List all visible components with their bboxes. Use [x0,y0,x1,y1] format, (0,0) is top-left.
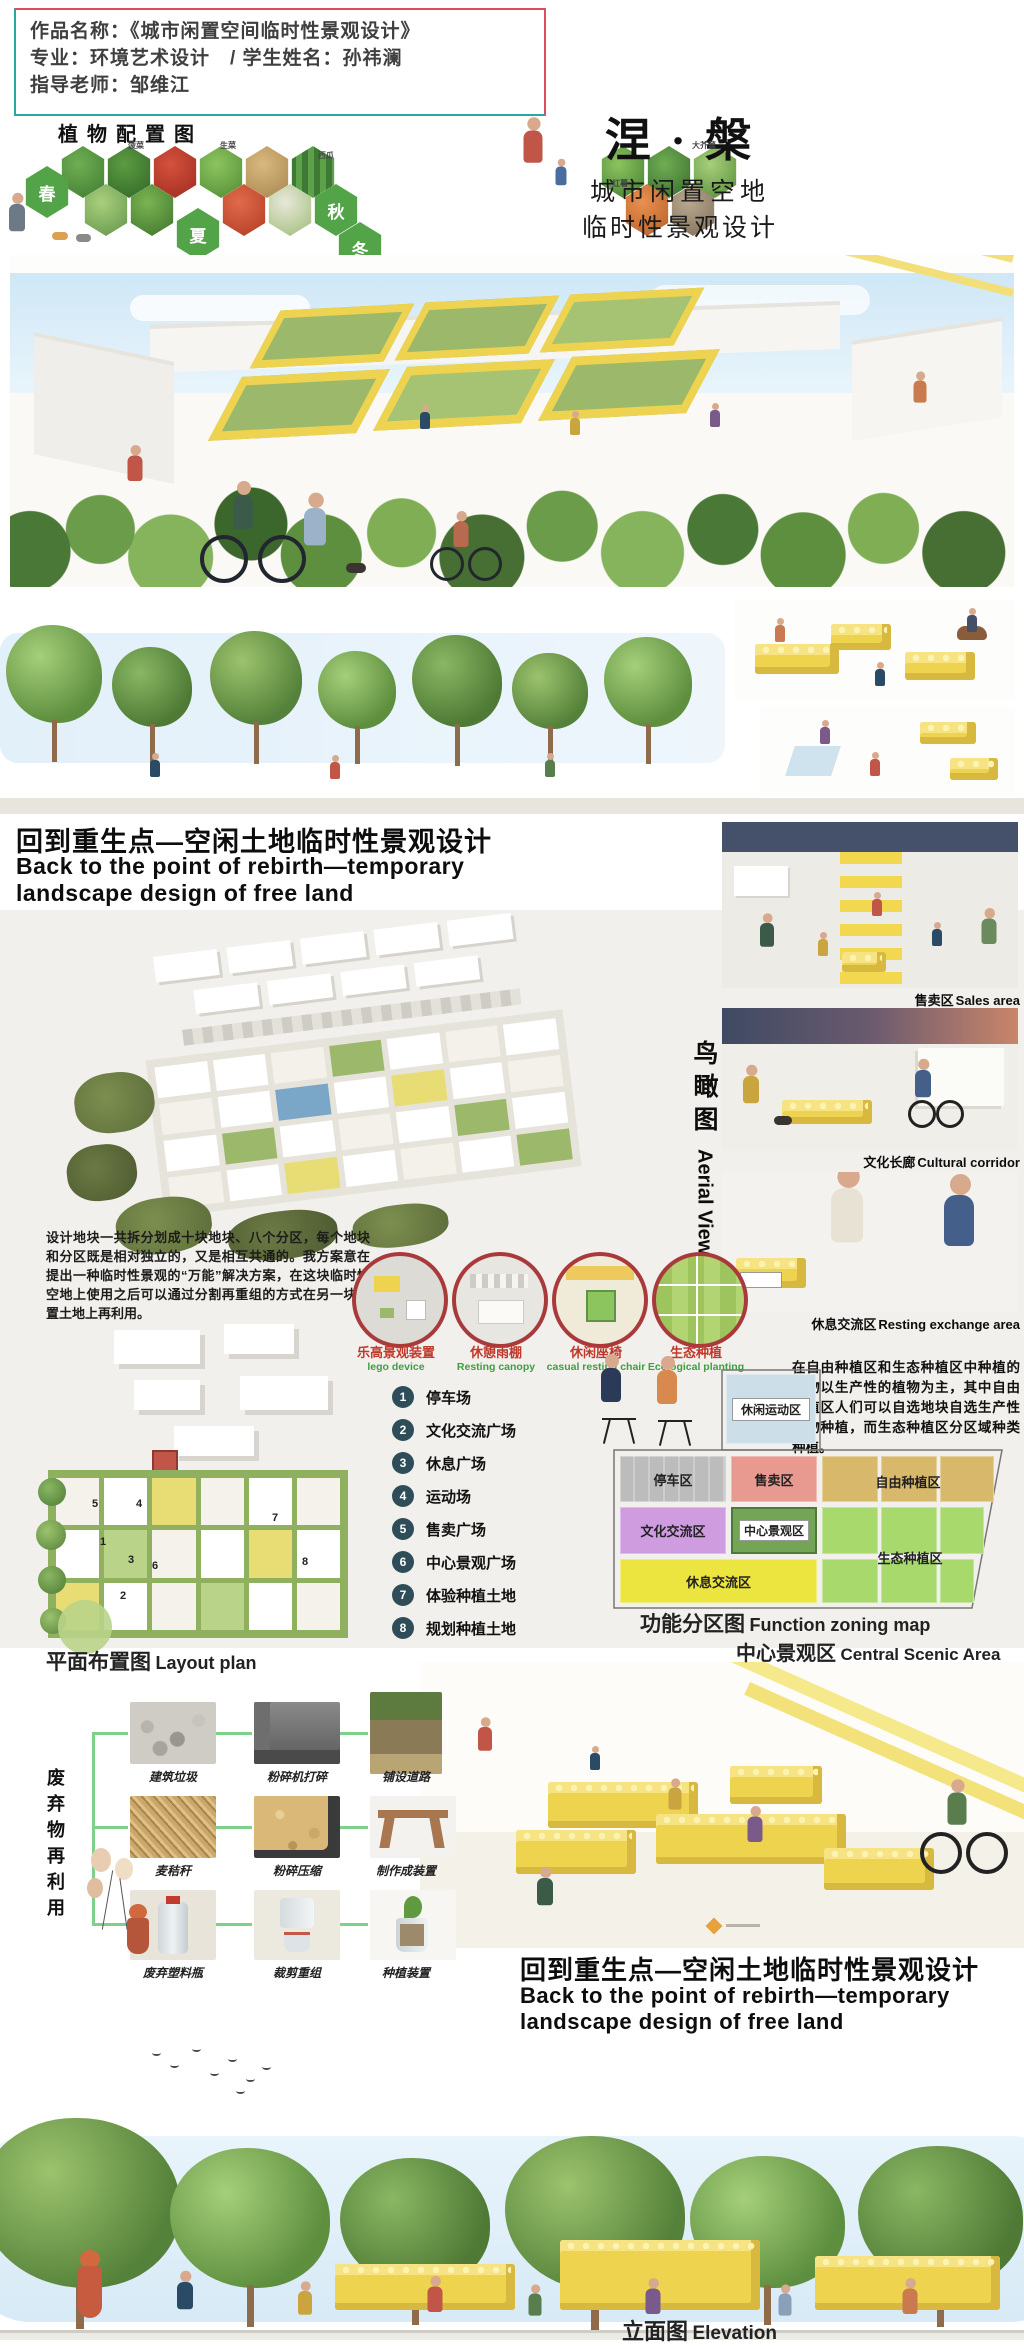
zone-free-label: 自由种植区 [822,1472,994,1491]
section-heading-en1: Back to the point of rebirth—temporary [16,853,464,880]
girl-dress [78,2266,102,2318]
tree [318,651,396,764]
mini-lego-block [950,758,998,780]
elevation-person [646,2278,661,2314]
legend-item: 8规划种植土地 [392,1617,516,1641]
aerial-building [300,931,367,965]
legend-label: 体验种植土地 [426,1588,516,1605]
dog [346,563,366,573]
zone-label: 休闲运动区 [732,1398,810,1421]
legend-label: 停车场 [426,1390,471,1407]
elevation-title-zh: 立面图 [622,2319,688,2344]
gallery-caption-corridor: 文化长廊Cultural corridor [722,1152,1020,1171]
caption-zh: 文化长廊 [863,1155,915,1170]
feature-zh: 休憩雨棚 [441,1346,551,1360]
bird [210,2070,219,2076]
dog [774,1116,792,1125]
balloon-string [102,1870,113,1929]
bird [170,2062,179,2068]
legend-item: 3休息广场 [392,1452,486,1476]
legend-item: 4运动场 [392,1485,471,1509]
card-person [831,1172,863,1242]
gallery-image-corridor [722,1008,1018,1150]
aerial-label-en: Aerial View [693,1149,716,1255]
season-hex-summer: 夏 [175,208,221,260]
elder-figure [9,193,25,231]
legend-item: 7体验种植土地 [392,1584,516,1608]
axon-block [174,1426,254,1456]
flow-line [216,1732,252,1735]
cat-orange [52,232,68,240]
elevation-title-en: Elevation [692,2323,776,2344]
mini-lego-block [755,644,839,674]
feature-circle-planting [652,1252,748,1348]
waste-step-label: 铺设道路 [346,1768,466,1785]
balloon [115,1858,133,1880]
render-person [748,1806,763,1842]
hero-person [128,445,143,481]
ground-shadow [0,2333,1024,2340]
mini-render-plaza [735,600,1015,700]
zone-culture: 文化交流区 [620,1507,726,1554]
flow-line [340,1826,368,1829]
waste-step-label: 裁剪重组 [237,1964,357,1981]
legend-number: 8 [392,1617,414,1639]
elevation-person [529,2284,542,2315]
mini-person [820,720,830,744]
waste-step-label: 粉碎压缩 [237,1862,357,1879]
balloon-girl-illustration [85,1848,205,1966]
rider-figure [967,608,977,632]
card-person [872,892,882,916]
design-poster: 作品名称：《城市闲置空间临时性景观设计》 专业：环境艺术设计 / 学生姓名：孙祎… [0,0,1024,2349]
zone-parking: 停车区 [620,1456,726,1502]
waste-step-label: 废弃塑料瓶 [113,1964,233,1981]
aerial-building [414,955,480,987]
flow-line [340,1923,368,1926]
strip-person [150,753,160,777]
walker-figure [304,493,326,546]
legend-item: 5售卖广场 [392,1518,486,1542]
hero-person [420,405,430,429]
logo-text-bar [726,1924,760,1927]
project-title-line: 作品名称：《城市闲置空间临时性景观设计》 [30,18,530,45]
plan-tree [36,1520,66,1550]
legend-label: 运动场 [426,1489,471,1506]
card-lego [842,952,886,972]
card-person [760,913,774,947]
cyclist-figure [454,511,469,547]
bicycle-wheel [920,1832,962,1874]
elevation-person [428,2276,443,2312]
main-subtitle-2: 临时性景观设计 [560,208,800,244]
project-major-line: 专业：环境艺术设计 / 学生姓名：孙祎澜 [30,45,530,72]
cyclist-figure [233,481,253,529]
red-coat-figure [524,117,543,163]
zone-label: 售卖区 [754,1470,793,1489]
render-person [590,1746,600,1770]
legend-number: 2 [392,1419,414,1441]
zone-leisure: 休闲运动区 [726,1374,816,1444]
kiosk-block [734,866,788,896]
aerial-building [340,964,406,996]
main-subtitle-1: 城市闲置空地 [575,172,785,208]
strip-person [330,755,340,779]
bicycle-wheel [258,535,306,583]
zone-label: 文化交流区 [640,1521,705,1540]
elevation-person [903,2278,918,2314]
plan-marker: 2 [120,1590,126,1602]
axon-block [114,1330,200,1364]
card-person [944,1174,974,1246]
zone-eco-label: 生态种植区 [840,1548,980,1567]
legend-number: 5 [392,1518,414,1540]
elevation-person [779,2284,792,2315]
aerial-building [226,940,293,974]
render-person [669,1778,682,1809]
elevation-render [0,2040,1024,2340]
render-person [478,1717,492,1751]
waste-step-label: 粉碎机打碎 [237,1768,357,1785]
gallery-image-resting [722,1172,1018,1312]
elevation-title: 立面图 Elevation [622,2314,777,2346]
intro-paragraph: 设计地块一共拆分划成十块地块、八个分区，每个地块和分区既是相对独立的，又是相互共… [46,1228,370,1323]
flow-line [216,1923,252,1926]
strip-person [545,753,555,777]
bottom-heading-zh: 回到重生点—空闲土地临时性景观设计 [520,1950,979,1987]
legend-number: 6 [392,1551,414,1573]
zoning-title-en: Function zoning map [749,1615,930,1635]
central-title-zh: 中心景观区 [736,1643,836,1665]
plant-label-spinach: 菠菜 [128,140,144,151]
aerial-building [267,973,333,1005]
tree [512,653,588,764]
elevation-person [177,2271,193,2309]
aerial-building [373,922,440,956]
bird [236,2088,245,2094]
card-sky [722,822,1018,852]
tree [112,647,192,764]
girl-dress [127,1918,149,1954]
tree [6,625,102,762]
central-area-title: 中心景观区 Central Scenic Area [736,1637,1000,1666]
zone-central: 中心景观区 [731,1507,817,1554]
balloon [91,1848,111,1872]
legend-label: 售卖广场 [426,1522,486,1539]
bottom-heading-en1: Back to the point of rebirth—temporary [520,1983,950,2009]
hero-render [10,255,1014,587]
project-advisor-line: 指导老师：邹维江 [30,72,530,99]
waste-vertical-title: 废弃物再利用 [42,1768,68,1924]
aerial-building [447,913,514,947]
zone-eco-cell [822,1507,878,1554]
bicycle-wheel [200,535,248,583]
caption-zh: 休息交流区 [811,1317,876,1332]
mini-render-scatter [760,706,1015,796]
mini-person [775,618,785,642]
caption-zh: 售卖区 [915,993,954,1008]
hero-person [914,371,927,402]
card-person [982,908,997,944]
section-heading-en2: landscape design of free land [16,880,354,907]
card-sky [722,1008,1018,1044]
elevation-person [298,2281,312,2315]
plan-marker: 6 [152,1560,158,1572]
tree [604,637,692,764]
card-person [818,932,828,956]
bicycle-wheel [908,1100,936,1128]
plan-title-en: Layout plan [155,1653,256,1673]
waste-img-path [370,1692,442,1774]
flow-line [92,1826,128,1829]
caption-en: Resting exchange area [878,1317,1020,1332]
lego-block [516,1830,636,1874]
central-title-en: Central Scenic Area [840,1645,1000,1664]
feature-circle-canopy [452,1252,548,1348]
plan-marker: 5 [92,1498,98,1510]
bird [262,2064,271,2070]
zoning-title-zh: 功能分区图 [640,1613,745,1636]
legend-number: 1 [392,1386,414,1408]
layout-plan-title: 平面布置图 Layout plan [46,1646,256,1676]
card-person [932,922,942,946]
aerial-view-label: 鸟瞰图 Aerial View [686,1040,722,1255]
waste-img-table [370,1796,456,1858]
strip-ground-band [0,798,1024,814]
legend-label: 休息广场 [426,1456,486,1473]
plan-marker: 8 [302,1556,308,1568]
bicycle-wheel [936,1100,964,1128]
plan-marker: 1 [100,1536,106,1548]
bird [152,2050,161,2056]
waste-step-label: 建筑垃圾 [113,1768,233,1785]
waste-step-label: 种植装置 [346,1964,466,1981]
feature-label-canopy: 休憩雨棚 Resting canopy [441,1346,551,1374]
central-scenic-render [420,1662,1024,1948]
tree [412,635,502,766]
gallery-image-sales [722,822,1018,988]
caption-en: Cultural corridor [917,1155,1020,1170]
card-person [743,1065,759,1103]
zone-sales: 售卖区 [731,1456,817,1502]
plan-marker: 7 [272,1512,278,1524]
waste-img-board [254,1796,340,1858]
card-cyclist [915,1059,931,1097]
zone-label: 停车区 [653,1470,692,1489]
legend-label: 规划种植土地 [426,1621,516,1638]
gallery-caption-sales: 售卖区Sales area [722,990,1020,1009]
mini-lego-block [920,722,976,744]
waste-img-rubble [130,1702,216,1764]
mini-person [870,752,880,776]
legend-item: 2文化交流广场 [392,1419,516,1443]
stamp-box [740,1272,782,1288]
tree [210,631,302,764]
axon-block [224,1324,294,1354]
mini-blue-mat [785,746,841,776]
plan-tree [38,1566,66,1594]
mini-lego-block [905,652,975,680]
bicycle-wheel [430,547,464,581]
hero-person [710,403,720,427]
plan-marker: 3 [128,1554,134,1566]
legend-item: 1停车场 [392,1386,471,1410]
zone-eco-cell [940,1507,984,1554]
waste-img-bottle-cut [254,1890,340,1960]
bird [192,2046,201,2052]
project-info-box: 作品名称：《城市闲置空间临时性景观设计》 专业：环境艺术设计 / 学生姓名：孙祎… [14,8,546,116]
caption-en: Sales area [956,993,1020,1008]
legend-label: 文化交流广场 [426,1423,516,1440]
zoning-map-title: 功能分区图 Function zoning map [640,1608,930,1638]
zone-eco-cell [881,1507,937,1554]
gallery-caption-resting: 休息交流区Resting exchange area [722,1314,1020,1333]
balloon [87,1878,103,1898]
plan-title-zh: 平面布置图 [46,1651,151,1674]
legend-number: 4 [392,1485,414,1507]
plan-marker: 4 [136,1498,142,1510]
plant-label-watermelon: 西瓜 [318,150,334,161]
legend-number: 7 [392,1584,414,1606]
aerial-label-zh: 鸟瞰图 [686,1040,722,1139]
feature-en: Resting canopy [441,1360,551,1374]
waste-step-label: 制作成装置 [346,1862,466,1879]
bird [228,2056,237,2062]
cat-grey [76,234,91,242]
card-lego [782,1100,872,1124]
lego-block [730,1766,822,1804]
elevation-yellow-wall [335,2264,515,2310]
flow-line [216,1826,252,1829]
lego-block [824,1848,934,1890]
flow-line [340,1732,368,1735]
flow-line [92,1732,128,1735]
aerial-tree-cluster [71,1068,158,1137]
main-title: 涅 · 槃 [575,104,785,170]
render-person [537,1867,553,1905]
legend-number: 3 [392,1452,414,1474]
bird [246,2076,255,2082]
axon-block [240,1376,328,1410]
hero-bushes [10,480,1014,587]
layout-plan-drawing: 5 4 1 3 6 2 7 8 [44,1322,374,1642]
mini-person [875,662,885,686]
feature-circle-chair [552,1252,648,1348]
tree-strip [0,595,725,795]
aerial-group [23,890,658,1281]
zone-rest: 休息交流区 [620,1559,817,1603]
plan-tree [38,1478,66,1506]
bottom-heading-en2: landscape design of free land [520,2009,844,2035]
aerial-building [153,949,220,983]
hero-person [570,411,580,435]
legend-item: 6中心景观广场 [392,1551,516,1575]
render-cyclist [948,1779,967,1825]
child-figure [556,159,567,185]
zone-label: 休息交流区 [686,1572,751,1591]
zone-label: 中心景观区 [739,1520,809,1541]
mini-lego-block [831,624,891,650]
plant-label-lettuce: 生菜 [220,140,236,151]
aerial-building [193,982,259,1014]
waste-img-planter [370,1890,456,1960]
bicycle-wheel [468,547,502,581]
plant-label-sweet-potato: 红薯 [612,178,628,189]
bicycle-wheel [966,1832,1008,1874]
aerial-view-render [20,915,660,1255]
legend-label: 中心景观广场 [426,1555,516,1572]
plant-label-mustard: 大芥菜 [692,140,716,151]
aerial-tree-cluster [64,1141,140,1205]
axon-block [134,1380,200,1410]
waste-img-crusher [254,1702,340,1764]
